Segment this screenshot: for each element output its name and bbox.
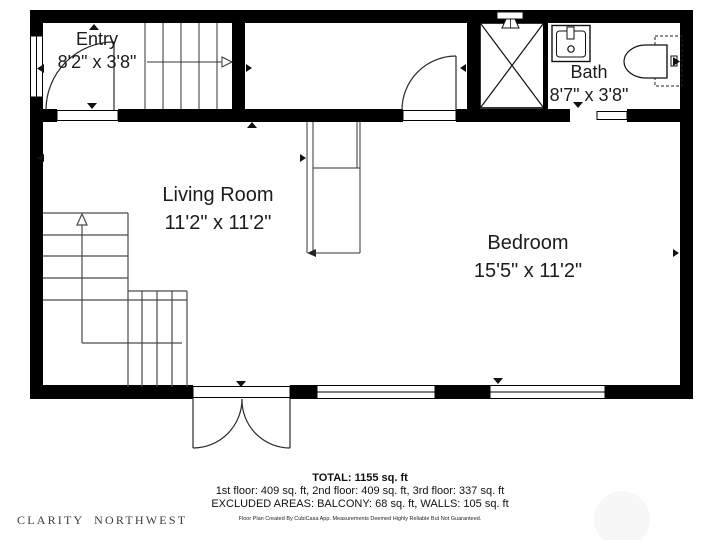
hall-door-opening [403, 111, 456, 121]
room-name: Entry [17, 28, 177, 51]
watermark-circle [594, 491, 650, 540]
room-name: Bedroom [418, 229, 638, 257]
wall-bottom-seg4 [605, 385, 693, 399]
stair-direction-arrowhead [222, 57, 232, 67]
room-dimensions: 8'7" x 3'8" [509, 84, 669, 107]
room-label-entry: Entry 8'2" x 3'8" [17, 28, 177, 74]
wall-bottom-seg2 [290, 385, 317, 399]
marker-hall-left [246, 64, 252, 72]
entry-door-threshold [57, 111, 118, 121]
marker-hall-right [460, 64, 466, 72]
company-logo: CLARITY NORTHWEST [17, 513, 187, 528]
floor-plan-page: Entry 8'2" x 3'8" Bath 8'7" x 3'8" Livin… [0, 0, 720, 540]
wall-right [680, 10, 693, 399]
room-dimensions: 11'2" x 11'2" [108, 209, 328, 237]
wall-hall-seg2 [118, 109, 403, 122]
shower-head-bracket [497, 12, 523, 19]
french-door-arc-left [193, 399, 242, 448]
room-dimensions: 8'2" x 3'8" [17, 51, 177, 74]
room-name: Living Room [108, 181, 328, 209]
wall-left-lower [30, 97, 43, 399]
room-dimensions: 15'5" x 11'2" [418, 257, 638, 285]
sink-faucet [567, 27, 574, 39]
marker-bedroom-right [673, 249, 679, 257]
total-area-text: TOTAL: 1155 sq. ft [0, 472, 720, 485]
stair-up-arrowhead [77, 214, 87, 225]
hall-door-swing-arc [402, 56, 456, 110]
wall-hall-bath [467, 10, 480, 122]
room-label-bath: Bath 8'7" x 3'8" [509, 61, 669, 107]
bath-door-threshold [597, 112, 627, 120]
wall-bottom-seg1 [30, 385, 193, 399]
wall-top [30, 10, 693, 23]
wall-hall-seg1 [43, 109, 57, 122]
room-label-bedroom: Bedroom 15'5" x 11'2" [418, 229, 638, 285]
marker-stairvoid [300, 154, 306, 162]
room-label-living-room: Living Room 11'2" x 11'2" [108, 181, 328, 237]
marker-entry-bottom [87, 103, 97, 109]
wall-hall-seg4 [627, 109, 680, 122]
french-door-threshold [193, 387, 290, 398]
void-down-arrowhead [307, 249, 316, 257]
wall-bottom-seg3 [435, 385, 490, 399]
room-name: Bath [509, 61, 669, 84]
marker-bottom-window [493, 378, 503, 384]
marker-living-top [247, 122, 257, 128]
wall-stairs-hall [232, 10, 245, 122]
french-door-arc-right [242, 399, 290, 448]
staircase-lower [43, 213, 187, 387]
